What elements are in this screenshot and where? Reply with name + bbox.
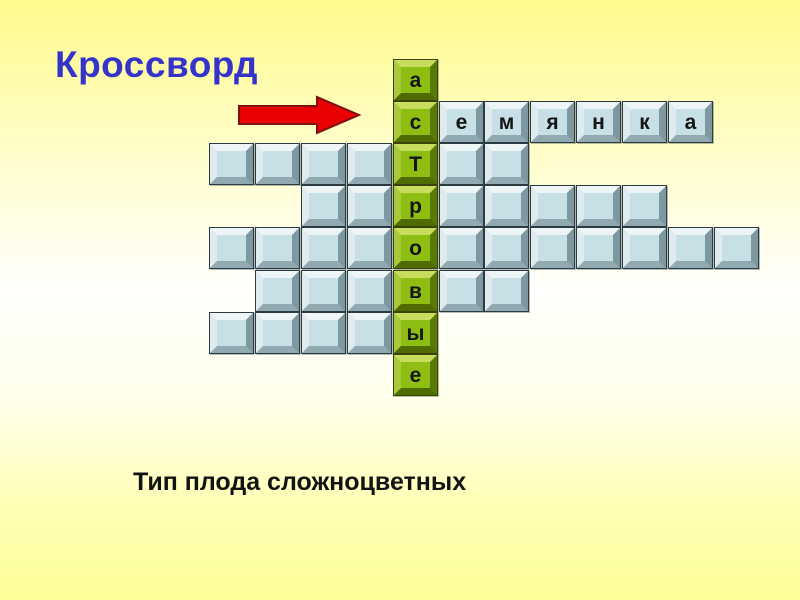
grid-cell [302,144,345,184]
grid-cell [210,144,253,184]
answer-cell: е [394,355,437,395]
grid-cell [485,228,528,268]
grid-cell [485,186,528,226]
grid-cell [440,271,483,311]
grid-cell [440,228,483,268]
grid-cell [210,313,253,353]
cell-letter: н [592,112,605,133]
grid-cell [348,271,391,311]
grid-cell [440,144,483,184]
grid-cell [302,271,345,311]
cell-letter: о [409,238,422,259]
grid-cell [256,228,299,268]
cell-letter: с [410,112,422,133]
grid-cell: е [440,102,483,142]
answer-cell: о [394,228,437,268]
answer-cell: ы [394,313,437,353]
cell-letter: е [456,112,468,133]
grid-cell [348,313,391,353]
answer-cell: а [394,60,437,100]
grid-cell [577,186,620,226]
cell-letter: я [546,112,558,133]
cell-letter: ы [407,323,425,344]
grid-cell: я [531,102,574,142]
crossword-grid: асемянкаТровые [210,60,758,398]
cell-letter: а [410,70,422,91]
grid-cell [531,186,574,226]
answer-cell: в [394,271,437,311]
grid-cell [440,186,483,226]
answer-cell: р [394,186,437,226]
grid-cell [623,186,666,226]
grid-cell: а [669,102,712,142]
grid-cell [256,144,299,184]
grid-cell [623,228,666,268]
grid-cell [302,228,345,268]
grid-cell [577,228,620,268]
cell-letter: м [499,112,515,133]
cell-letter: к [639,112,650,133]
cell-letter: а [685,112,697,133]
grid-cell [715,228,758,268]
grid-cell [256,271,299,311]
grid-cell [348,144,391,184]
answer-cell: с [394,102,437,142]
grid-cell [302,186,345,226]
grid-cell [348,186,391,226]
answer-cell: Т [394,144,437,184]
grid-cell [485,144,528,184]
cell-letter: Т [409,154,422,175]
slide: Кроссворд асемянкаТровые Тип плода сложн… [0,0,800,600]
grid-cell [256,313,299,353]
grid-cell: к [623,102,666,142]
grid-cell [348,228,391,268]
cell-letter: в [409,281,422,302]
grid-cell [485,271,528,311]
grid-cell [669,228,712,268]
clue-text: Тип плода сложноцветных [133,468,466,497]
grid-cell [210,228,253,268]
grid-cell [302,313,345,353]
grid-cell: м [485,102,528,142]
cell-letter: р [409,196,422,217]
grid-cell: н [577,102,620,142]
grid-cell [531,228,574,268]
cell-letter: е [410,365,422,386]
